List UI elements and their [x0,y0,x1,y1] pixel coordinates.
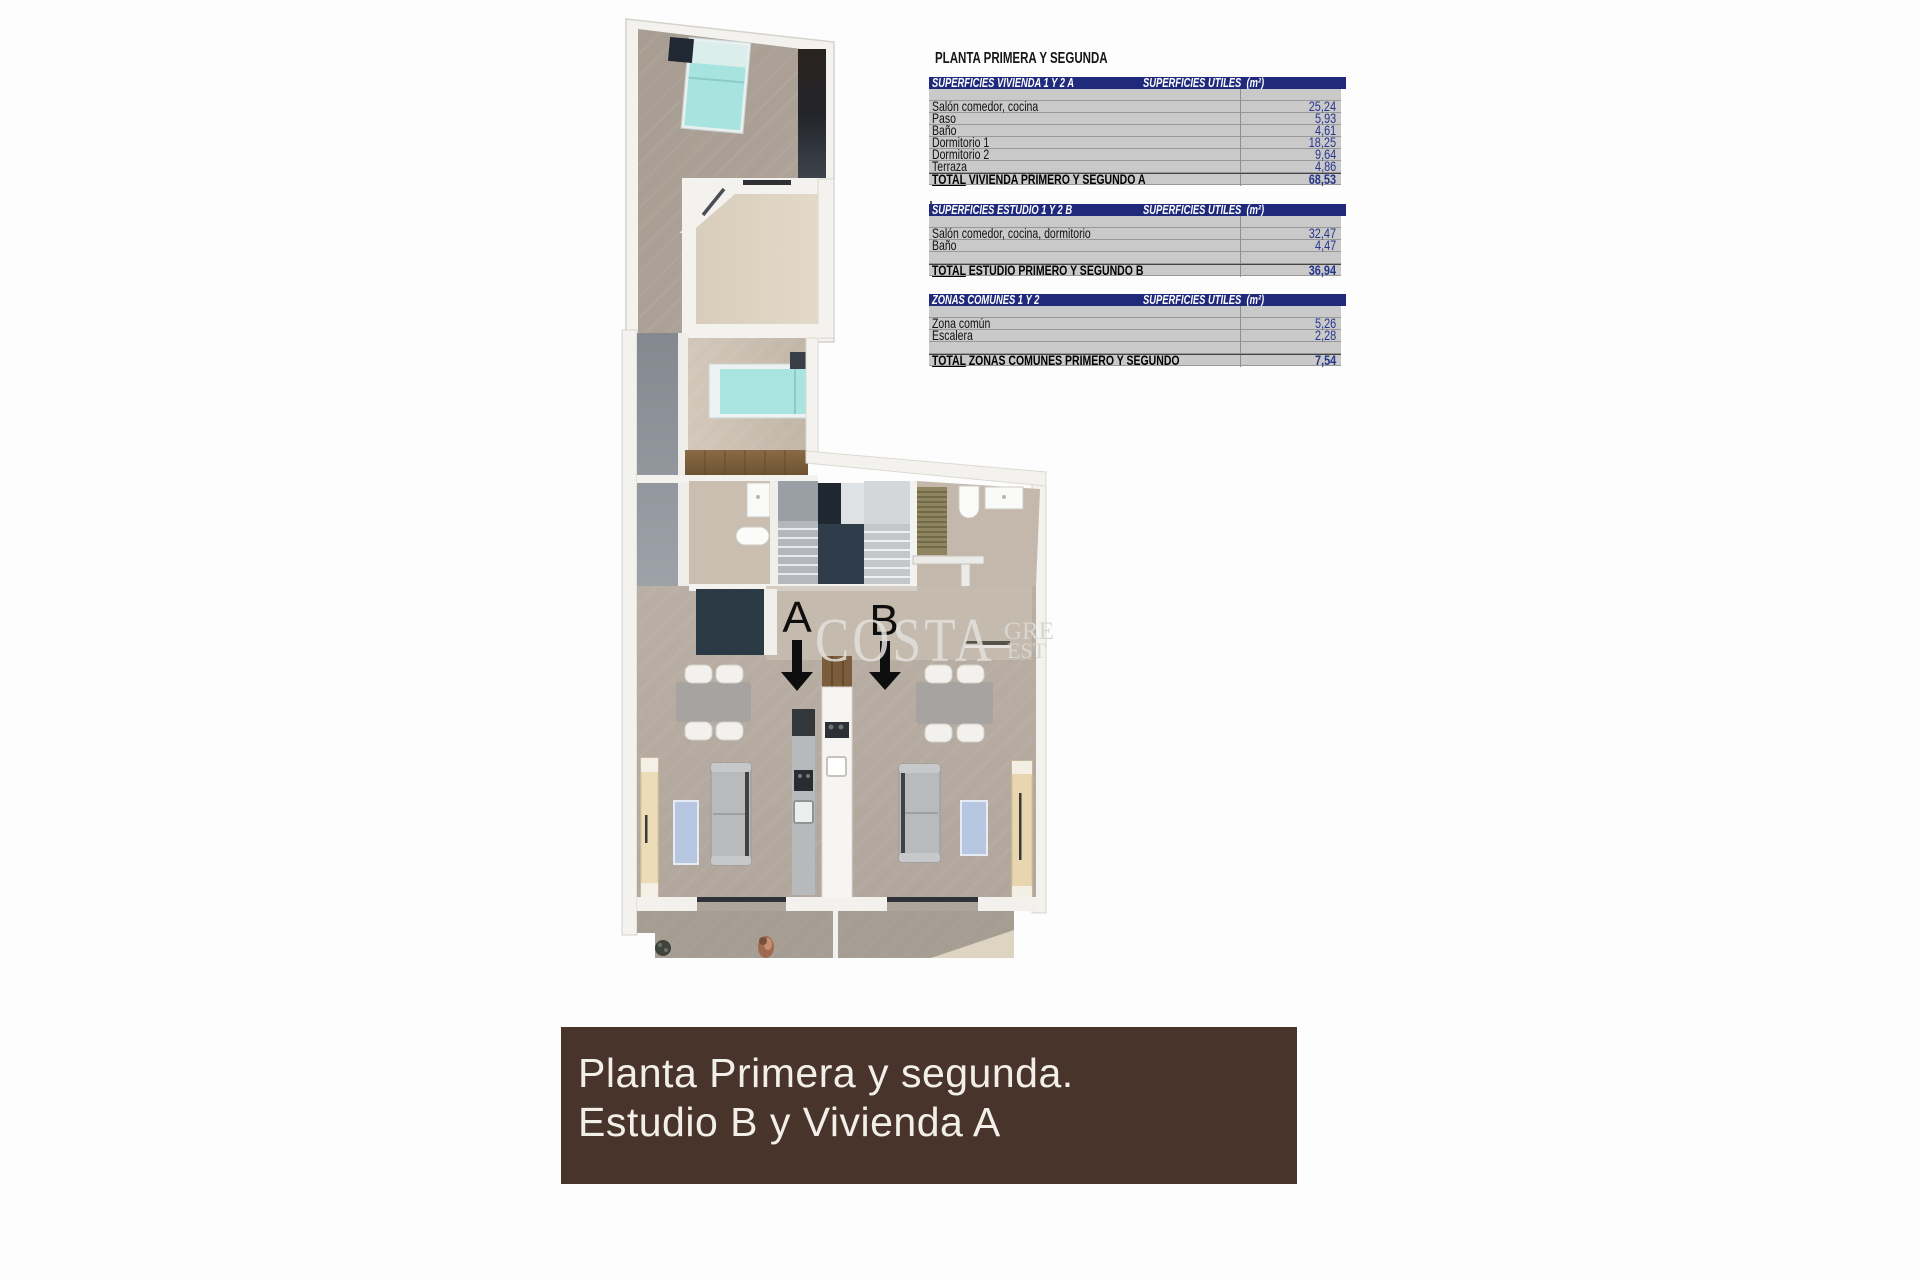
svg-text:COSTA: COSTA [815,607,995,675]
svg-text:A: A [782,593,812,642]
svg-text:EST: EST [1007,638,1047,663]
